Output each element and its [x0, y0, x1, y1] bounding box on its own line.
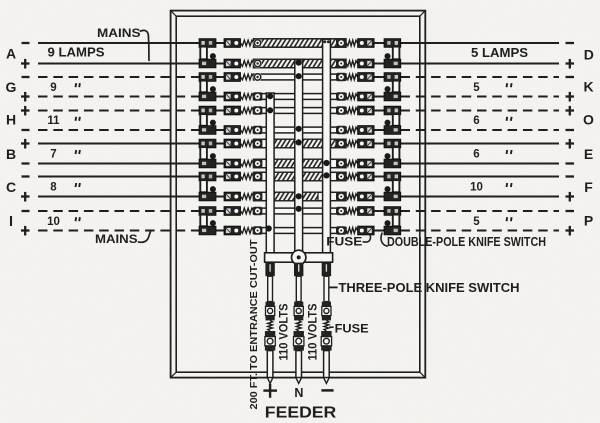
svg-text:P: P: [584, 213, 593, 229]
svg-text:5: 5: [473, 216, 480, 228]
svg-text:10: 10: [47, 216, 60, 228]
svg-text:FUSE: FUSE: [335, 322, 369, 336]
svg-text:N: N: [294, 386, 303, 400]
svg-text:C: C: [6, 179, 16, 195]
svg-text:G: G: [6, 79, 17, 95]
svg-text:7: 7: [50, 149, 56, 161]
svg-text:MAINS: MAINS: [97, 26, 141, 40]
svg-text:5 LAMPS: 5 LAMPS: [471, 45, 528, 60]
svg-text:D: D: [584, 46, 594, 62]
svg-text:10: 10: [470, 182, 483, 194]
svg-text:6: 6: [473, 115, 479, 127]
svg-text:DOUBLE-POLE KNIFE SWITCH: DOUBLE-POLE KNIFE SWITCH: [387, 235, 546, 249]
svg-text:110 VOLTS: 110 VOLTS: [307, 303, 319, 360]
svg-text:O: O: [583, 112, 594, 128]
svg-text:11: 11: [47, 115, 60, 127]
svg-text:E: E: [584, 146, 593, 162]
svg-text:9: 9: [50, 82, 56, 94]
svg-text:K: K: [583, 79, 593, 95]
svg-text:110 VOLTS: 110 VOLTS: [278, 303, 290, 360]
svg-text:6: 6: [473, 149, 479, 161]
svg-text:H: H: [6, 111, 16, 127]
svg-text:F: F: [584, 179, 593, 195]
svg-text:FEEDER: FEEDER: [265, 405, 337, 422]
svg-text:5: 5: [473, 82, 480, 94]
svg-text:B: B: [6, 146, 16, 162]
svg-text:FUSE: FUSE: [326, 234, 362, 248]
svg-text:8: 8: [50, 182, 57, 194]
svg-text:THREE-POLE KNIFE SWITCH: THREE-POLE KNIFE SWITCH: [339, 281, 520, 295]
svg-text:I: I: [9, 214, 13, 230]
svg-text:A: A: [6, 45, 16, 61]
svg-text:MAINS: MAINS: [95, 232, 138, 246]
svg-text:200 FT. TO ENTRANCE CUT-OUT: 200 FT. TO ENTRANCE CUT-OUT: [248, 239, 260, 410]
svg-text:9 LAMPS: 9 LAMPS: [48, 44, 105, 59]
